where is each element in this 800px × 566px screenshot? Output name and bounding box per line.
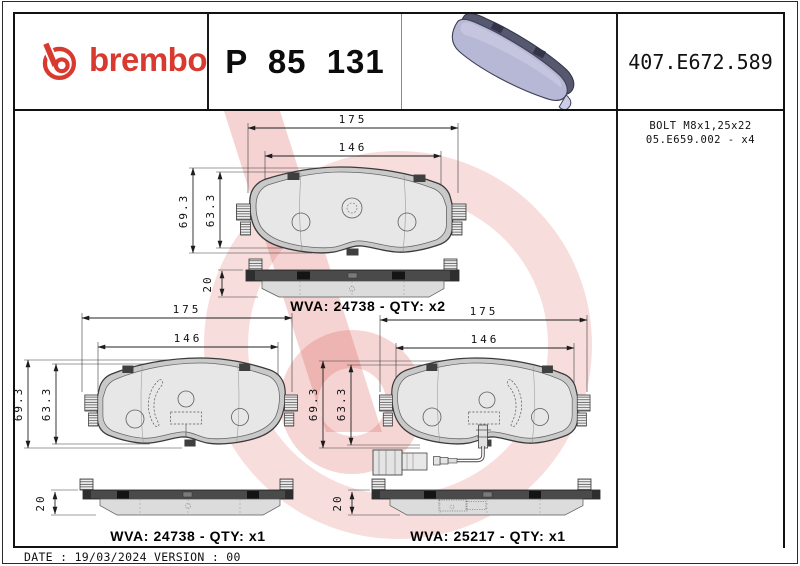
bolt-panel: BOLT M8x1,25x22 05.E659.002 - x4: [616, 111, 783, 548]
datasheet-page: 175 146 69.3 63.3 20: [0, 0, 800, 566]
bolt-spec-line1: BOLT M8x1,25x22: [618, 120, 783, 132]
header-row: brembo P 85 131 407.E672.589: [13, 12, 785, 111]
part-number: P 85 131: [225, 43, 385, 81]
product-photo-cell: [402, 14, 618, 109]
reference-number-cell: 407.E672.589: [618, 14, 783, 109]
reference-number: 407.E672.589: [628, 50, 773, 74]
part-number-cell: P 85 131: [209, 14, 402, 109]
footer-date-version: DATE : 19/03/2024 VERSION : 00: [24, 550, 241, 564]
brembo-logo-icon: [37, 39, 80, 85]
brand-cell: brembo: [15, 14, 209, 109]
brand-wordmark: brembo: [89, 43, 207, 80]
bolt-spec-line2: 05.E659.002 - x4: [618, 134, 783, 146]
brake-pad-3d-image: [402, 14, 616, 109]
